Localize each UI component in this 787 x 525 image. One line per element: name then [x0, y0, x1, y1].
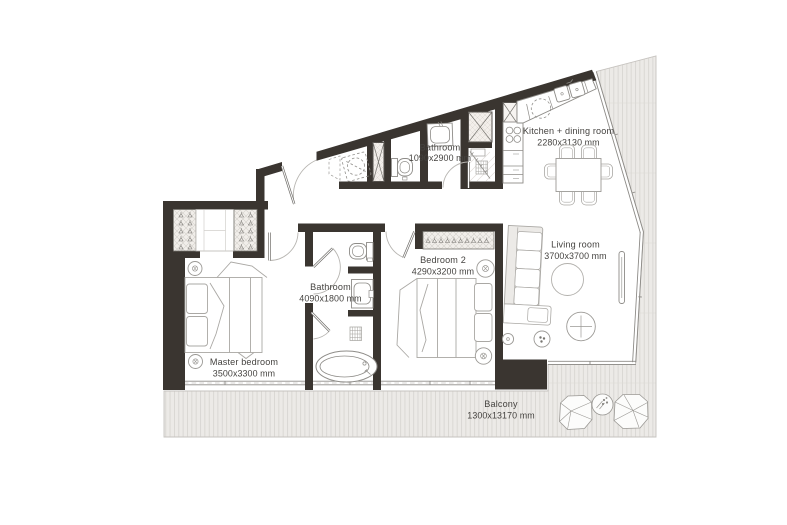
- svg-text:4090x1800 mm: 4090x1800 mm: [299, 294, 361, 304]
- svg-text:3700x3700 mm: 3700x3700 mm: [544, 251, 606, 261]
- svg-text:Bathroom: Bathroom: [420, 143, 461, 153]
- svg-text:Bathroom: Bathroom: [310, 282, 351, 292]
- svg-text:4290x3200 mm: 4290x3200 mm: [412, 267, 474, 277]
- svg-text:Kitchen + dining room: Kitchen + dining room: [523, 126, 614, 136]
- svg-text:1300x13170 mm: 1300x13170 mm: [467, 411, 534, 421]
- svg-text:Living room: Living room: [551, 240, 600, 250]
- svg-text:Bedroom 2: Bedroom 2: [420, 255, 466, 265]
- svg-text:1090x2900 mm: 1090x2900 mm: [409, 153, 471, 163]
- svg-text:Balcony: Balcony: [484, 399, 518, 409]
- svg-text:3500x3300 mm: 3500x3300 mm: [213, 369, 275, 379]
- svg-text:Master bedroom: Master bedroom: [210, 357, 278, 367]
